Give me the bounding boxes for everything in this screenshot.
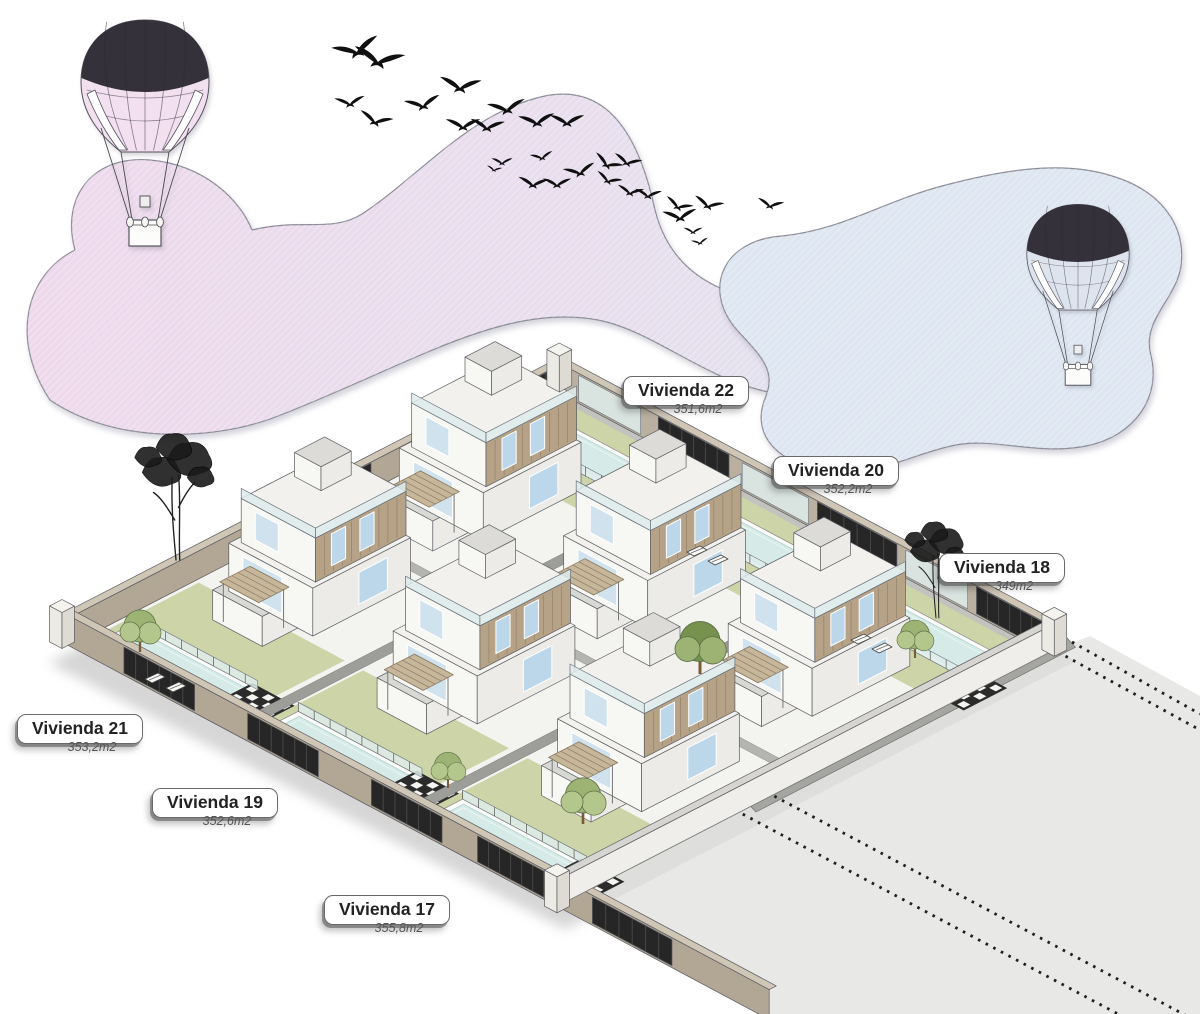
bird-silhouette — [404, 95, 442, 113]
bird-silhouette — [357, 110, 393, 130]
vivienda-label-chip[interactable]: Vivienda 19 — [152, 788, 278, 818]
vivienda-label-chip[interactable]: Vivienda 21 — [17, 714, 143, 744]
bird-silhouette — [692, 195, 724, 213]
bird-silhouette — [756, 198, 784, 212]
bird-silhouette — [684, 228, 703, 235]
bird-silhouette — [334, 96, 365, 109]
scene-svg — [0, 0, 1200, 1014]
vivienda-label-chip[interactable]: Vivienda 20 — [773, 456, 899, 486]
vivienda-label-chip[interactable]: Vivienda 22 — [623, 376, 749, 406]
vivienda-label-chip[interactable]: Vivienda 18 — [939, 553, 1065, 583]
bird-silhouette — [691, 238, 709, 247]
bird-silhouette — [662, 209, 697, 224]
vivienda-label-chip[interactable]: Vivienda 17 — [324, 895, 450, 925]
bird-silhouette — [439, 77, 482, 95]
architectural-site-rendering: Vivienda 22351,6m2Vivienda 20352,2m2Vivi… — [0, 0, 1200, 1014]
bird-silhouette — [352, 46, 406, 72]
